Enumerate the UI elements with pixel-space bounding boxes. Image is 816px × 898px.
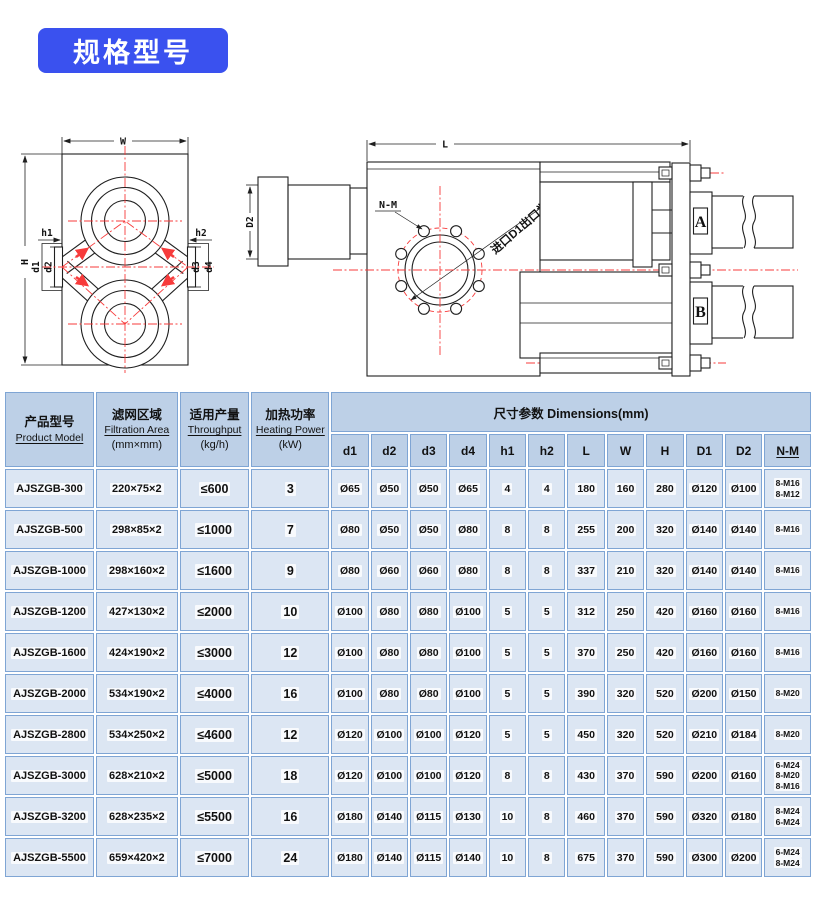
cell-dimension: 8: [489, 551, 526, 590]
dim-column-header: d4: [449, 434, 486, 467]
cell-dimension: Ø50: [410, 469, 447, 508]
cylinder-housing: [520, 162, 672, 373]
cell-dimension: 8: [528, 756, 565, 795]
label-nm: N-M: [379, 200, 397, 211]
label-d4: d4: [204, 261, 215, 273]
cell-filtration-area: 659×420×2: [96, 838, 178, 877]
cell-dimension: Ø140: [686, 510, 723, 549]
cell-product-model: AJSZGB-300: [5, 469, 94, 508]
cell-dimension: 8: [528, 797, 565, 836]
cell-dimension: Ø210: [686, 715, 723, 754]
col-header-zh: 适用产量: [181, 407, 249, 424]
cell-dimension: Ø200: [686, 756, 723, 795]
label-h: H: [20, 259, 31, 265]
col-header-heating-power: 加热功率 Heating Power (kW): [251, 392, 329, 467]
cell-dimension: Ø60: [410, 551, 447, 590]
cell-dimension: 590: [646, 797, 683, 836]
cell-dimension: 8: [489, 510, 526, 549]
cell-dimension: 460: [567, 797, 604, 836]
spec-table-body: AJSZGB-300220×75×2≤6003Ø65Ø50Ø50Ø6544180…: [5, 469, 811, 877]
cell-dimension: 5: [528, 674, 565, 713]
cell-dimension: Ø120: [331, 756, 368, 795]
cell-product-model: AJSZGB-2800: [5, 715, 94, 754]
cell-dimension: Ø320: [686, 797, 723, 836]
col-header-en: Heating Power: [252, 423, 328, 437]
cell-throughput: ≤4600: [180, 715, 250, 754]
cell-dimension: Ø80: [449, 551, 486, 590]
label-w: W: [120, 137, 127, 148]
cell-filtration-area: 220×75×2: [96, 469, 178, 508]
cell-heating-power: 16: [251, 674, 329, 713]
cell-filtration-area: 628×210×2: [96, 756, 178, 795]
cell-filtration-area: 628×235×2: [96, 797, 178, 836]
cell-dimension: 250: [607, 592, 644, 631]
cell-dimension: Ø80: [371, 592, 408, 631]
col-header-zh: 滤网区域: [97, 407, 177, 424]
cell-dimension: Ø180: [331, 797, 368, 836]
cell-dimension: 160: [607, 469, 644, 508]
cell-dimension: 320: [646, 551, 683, 590]
cell-dimension: Ø180: [725, 797, 762, 836]
col-header-zh: 加热功率: [252, 407, 328, 424]
cell-dimension: 5: [528, 633, 565, 672]
cell-nm: 8-M246-M24: [764, 797, 811, 836]
cell-dimension: Ø200: [686, 674, 723, 713]
table-row: AJSZGB-3000628×210×2≤500018Ø120Ø100Ø100Ø…: [5, 756, 811, 795]
cell-dimension: 5: [528, 592, 565, 631]
cell-dimension: Ø50: [410, 510, 447, 549]
cell-filtration-area: 534×250×2: [96, 715, 178, 754]
cell-heating-power: 24: [251, 838, 329, 877]
cell-dimension: Ø80: [371, 674, 408, 713]
table-row: AJSZGB-1200427×130×2≤200010Ø100Ø80Ø80Ø10…: [5, 592, 811, 631]
filter-cartridge: [258, 177, 367, 266]
cell-dimension: Ø65: [449, 469, 486, 508]
cell-dimension: Ø160: [725, 633, 762, 672]
dimension-h1: h1: [38, 228, 60, 240]
cell-dimension: 420: [646, 633, 683, 672]
cell-throughput: ≤600: [180, 469, 250, 508]
cell-dimension: Ø160: [725, 592, 762, 631]
cell-throughput: ≤5000: [180, 756, 250, 795]
table-row: AJSZGB-5500659×420×2≤700024Ø180Ø140Ø115Ø…: [5, 838, 811, 877]
col-header-filtration-area: 滤网区域 Filtration Area (mm×mm): [96, 392, 178, 467]
cell-dimension: 210: [607, 551, 644, 590]
dimension-h2: h2: [190, 228, 212, 240]
col-header-en: Throughput: [181, 423, 249, 437]
cell-dimension: 590: [646, 838, 683, 877]
cell-dimension: 370: [567, 633, 604, 672]
cell-dimension: Ø50: [371, 469, 408, 508]
label-d2-cartridge: D2: [245, 216, 256, 227]
cell-dimension: 4: [528, 469, 565, 508]
cell-nm: 6-M248-M208-M16: [764, 756, 811, 795]
cell-dimension: 8: [528, 551, 565, 590]
dim-column-header: d2: [371, 434, 408, 467]
dim-column-header: D1: [686, 434, 723, 467]
cell-dimension: 8: [528, 838, 565, 877]
cell-dimension: Ø120: [686, 469, 723, 508]
page-title: 规格型号: [73, 31, 193, 70]
cell-dimension: 370: [607, 838, 644, 877]
cell-dimension: 5: [489, 592, 526, 631]
col-header-en: Filtration Area: [97, 423, 177, 437]
cell-dimension: Ø140: [371, 838, 408, 877]
cell-throughput: ≤2000: [180, 592, 250, 631]
cell-throughput: ≤3000: [180, 633, 250, 672]
cell-nm: 8-M16: [764, 510, 811, 549]
spec-sheet-page: 规格型号: [0, 0, 816, 898]
cell-dimension: 5: [489, 633, 526, 672]
cell-dimension: Ø100: [410, 756, 447, 795]
dim-column-header: h2: [528, 434, 565, 467]
dim-column-header: N-M: [764, 434, 811, 467]
page-title-badge: 规格型号: [38, 28, 228, 73]
cell-product-model: AJSZGB-1600: [5, 633, 94, 672]
cell-dimension: Ø150: [725, 674, 762, 713]
table-row: AJSZGB-2800534×250×2≤460012Ø120Ø100Ø100Ø…: [5, 715, 811, 754]
table-row: AJSZGB-500298×85×2≤10007Ø80Ø50Ø50Ø808825…: [5, 510, 811, 549]
dim-column-header: D2: [725, 434, 762, 467]
cell-product-model: AJSZGB-5500: [5, 838, 94, 877]
cell-dimension: Ø300: [686, 838, 723, 877]
cell-dimension: 320: [646, 510, 683, 549]
cell-dimension: Ø160: [686, 633, 723, 672]
cell-dimension: Ø184: [725, 715, 762, 754]
cell-throughput: ≤5500: [180, 797, 250, 836]
cell-dimension: Ø60: [371, 551, 408, 590]
dim-column-header: L: [567, 434, 604, 467]
cell-dimension: 250: [607, 633, 644, 672]
cell-dimension: 320: [607, 715, 644, 754]
cell-dimension: Ø160: [686, 592, 723, 631]
dim-column-header: W: [607, 434, 644, 467]
cell-dimension: 280: [646, 469, 683, 508]
label-cylinder-b: B: [695, 304, 706, 321]
cell-dimension: Ø80: [331, 551, 368, 590]
cell-dimension: 590: [646, 756, 683, 795]
label-h2: h2: [195, 228, 206, 239]
spec-table: 产品型号 Product Model 滤网区域 Filtration Area …: [3, 390, 813, 879]
cell-throughput: ≤1600: [180, 551, 250, 590]
cell-dimension: 675: [567, 838, 604, 877]
table-row: AJSZGB-300220×75×2≤6003Ø65Ø50Ø50Ø6544180…: [5, 469, 811, 508]
cell-throughput: ≤4000: [180, 674, 250, 713]
table-header-row-1: 产品型号 Product Model 滤网区域 Filtration Area …: [5, 392, 811, 432]
cell-dimension: 390: [567, 674, 604, 713]
cell-dimension: 430: [567, 756, 604, 795]
cell-dimension: 4: [489, 469, 526, 508]
col-group-dimensions: 尺寸参数 Dimensions(mm): [331, 392, 811, 432]
cell-filtration-area: 534×190×2: [96, 674, 178, 713]
cell-dimension: Ø140: [725, 510, 762, 549]
cell-dimension: Ø120: [449, 715, 486, 754]
dimension-d2-cartridge: D2: [245, 185, 258, 259]
cell-nm: 8-M16: [764, 551, 811, 590]
cell-dimension: Ø80: [410, 674, 447, 713]
col-header-unit: (kg/h): [181, 438, 249, 453]
cell-dimension: 370: [607, 756, 644, 795]
cell-nm: 8-M20: [764, 715, 811, 754]
cell-dimension: 10: [489, 797, 526, 836]
col-header-product-model: 产品型号 Product Model: [5, 392, 94, 467]
cell-dimension: Ø100: [331, 674, 368, 713]
table-row: AJSZGB-3200628×235×2≤550016Ø180Ø140Ø115Ø…: [5, 797, 811, 836]
dimension-l: L: [367, 140, 690, 163]
label-d3: d3: [191, 261, 202, 273]
cell-dimension: Ø140: [371, 797, 408, 836]
cell-dimension: 8: [528, 510, 565, 549]
cell-dimension: Ø100: [410, 715, 447, 754]
cell-product-model: AJSZGB-2000: [5, 674, 94, 713]
cell-dimension: 5: [528, 715, 565, 754]
cell-dimension: 370: [607, 797, 644, 836]
cell-dimension: 8: [489, 756, 526, 795]
dim-column-header: d3: [410, 434, 447, 467]
cell-dimension: Ø100: [449, 674, 486, 713]
cell-dimension: Ø160: [725, 756, 762, 795]
cell-dimension: Ø140: [449, 838, 486, 877]
cell-dimension: Ø100: [371, 756, 408, 795]
cell-nm: 8-M20: [764, 674, 811, 713]
cell-dimension: Ø100: [371, 715, 408, 754]
cell-nm: 8-M16: [764, 592, 811, 631]
cell-dimension: Ø50: [371, 510, 408, 549]
cell-dimension: Ø100: [725, 469, 762, 508]
cell-dimension: 5: [489, 674, 526, 713]
col-header-throughput: 适用产量 Throughput (kg/h): [180, 392, 250, 467]
col-header-unit: (kW): [252, 438, 328, 453]
cell-dimension: Ø120: [449, 756, 486, 795]
dim-column-header: d1: [331, 434, 368, 467]
cell-dimension: 520: [646, 715, 683, 754]
cell-dimension: Ø200: [725, 838, 762, 877]
label-h1: h1: [41, 228, 53, 239]
cell-dimension: 10: [489, 838, 526, 877]
cell-dimension: Ø80: [410, 592, 447, 631]
cell-dimension: Ø140: [686, 551, 723, 590]
cell-dimension: 5: [489, 715, 526, 754]
cell-dimension: Ø65: [331, 469, 368, 508]
cell-product-model: AJSZGB-3000: [5, 756, 94, 795]
main-housing-body: [367, 162, 540, 376]
cell-heating-power: 12: [251, 633, 329, 672]
cell-dimension: 180: [567, 469, 604, 508]
cell-product-model: AJSZGB-500: [5, 510, 94, 549]
cell-heating-power: 7: [251, 510, 329, 549]
cell-dimension: Ø130: [449, 797, 486, 836]
cell-heating-power: 3: [251, 469, 329, 508]
cell-dimension: 200: [607, 510, 644, 549]
cell-product-model: AJSZGB-1200: [5, 592, 94, 631]
label-d1: d1: [31, 261, 42, 273]
cell-dimension: Ø180: [331, 838, 368, 877]
cell-filtration-area: 427×130×2: [96, 592, 178, 631]
cell-heating-power: 18: [251, 756, 329, 795]
cell-dimension: 320: [607, 674, 644, 713]
cell-dimension: 312: [567, 592, 604, 631]
cell-dimension: 420: [646, 592, 683, 631]
col-header-en: Product Model: [6, 431, 93, 445]
cell-heating-power: 16: [251, 797, 329, 836]
hydraulic-cylinder-b: B: [690, 282, 793, 344]
table-row: AJSZGB-2000534×190×2≤400016Ø100Ø80Ø80Ø10…: [5, 674, 811, 713]
cell-nm: 6-M248-M24: [764, 838, 811, 877]
table-row: AJSZGB-1000298×160×2≤16009Ø80Ø60Ø60Ø8088…: [5, 551, 811, 590]
cell-dimension: Ø100: [331, 633, 368, 672]
cell-throughput: ≤7000: [180, 838, 250, 877]
col-header-zh: 产品型号: [6, 414, 93, 431]
cell-throughput: ≤1000: [180, 510, 250, 549]
label-l: L: [442, 140, 448, 151]
cell-dimension: Ø120: [331, 715, 368, 754]
cell-heating-power: 9: [251, 551, 329, 590]
cell-nm: 8-M168-M12: [764, 469, 811, 508]
cell-filtration-area: 424×190×2: [96, 633, 178, 672]
cell-dimension: 450: [567, 715, 604, 754]
cell-dimension: Ø80: [410, 633, 447, 672]
label-d2: d2: [44, 261, 55, 272]
cell-dimension: 337: [567, 551, 604, 590]
cell-dimension: Ø115: [410, 797, 447, 836]
dim-column-header: H: [646, 434, 683, 467]
cell-dimension: Ø100: [449, 592, 486, 631]
hydraulic-cylinder-a: A: [690, 192, 793, 254]
flange-plate: [672, 163, 690, 376]
front-view-drawing: W H h1 h2 d1 d2 d3 d4: [8, 126, 233, 378]
cell-dimension: Ø115: [410, 838, 447, 877]
side-view-drawing: D2 N-M 进口D1出口为D2: [238, 128, 813, 390]
table-row: AJSZGB-1600424×190×2≤300012Ø100Ø80Ø80Ø10…: [5, 633, 811, 672]
cell-dimension: 255: [567, 510, 604, 549]
cell-product-model: AJSZGB-1000: [5, 551, 94, 590]
cell-nm: 8-M16: [764, 633, 811, 672]
cell-heating-power: 12: [251, 715, 329, 754]
cell-dimension: Ø80: [449, 510, 486, 549]
cell-dimension: Ø80: [371, 633, 408, 672]
cell-heating-power: 10: [251, 592, 329, 631]
dim-column-header: h1: [489, 434, 526, 467]
cell-dimension: Ø80: [331, 510, 368, 549]
cell-dimension: Ø100: [331, 592, 368, 631]
cell-dimension: 520: [646, 674, 683, 713]
cell-filtration-area: 298×85×2: [96, 510, 178, 549]
label-cylinder-a: A: [695, 214, 707, 231]
cell-filtration-area: 298×160×2: [96, 551, 178, 590]
cell-dimension: Ø140: [725, 551, 762, 590]
cell-product-model: AJSZGB-3200: [5, 797, 94, 836]
cell-dimension: Ø100: [449, 633, 486, 672]
col-header-unit: (mm×mm): [97, 438, 177, 453]
